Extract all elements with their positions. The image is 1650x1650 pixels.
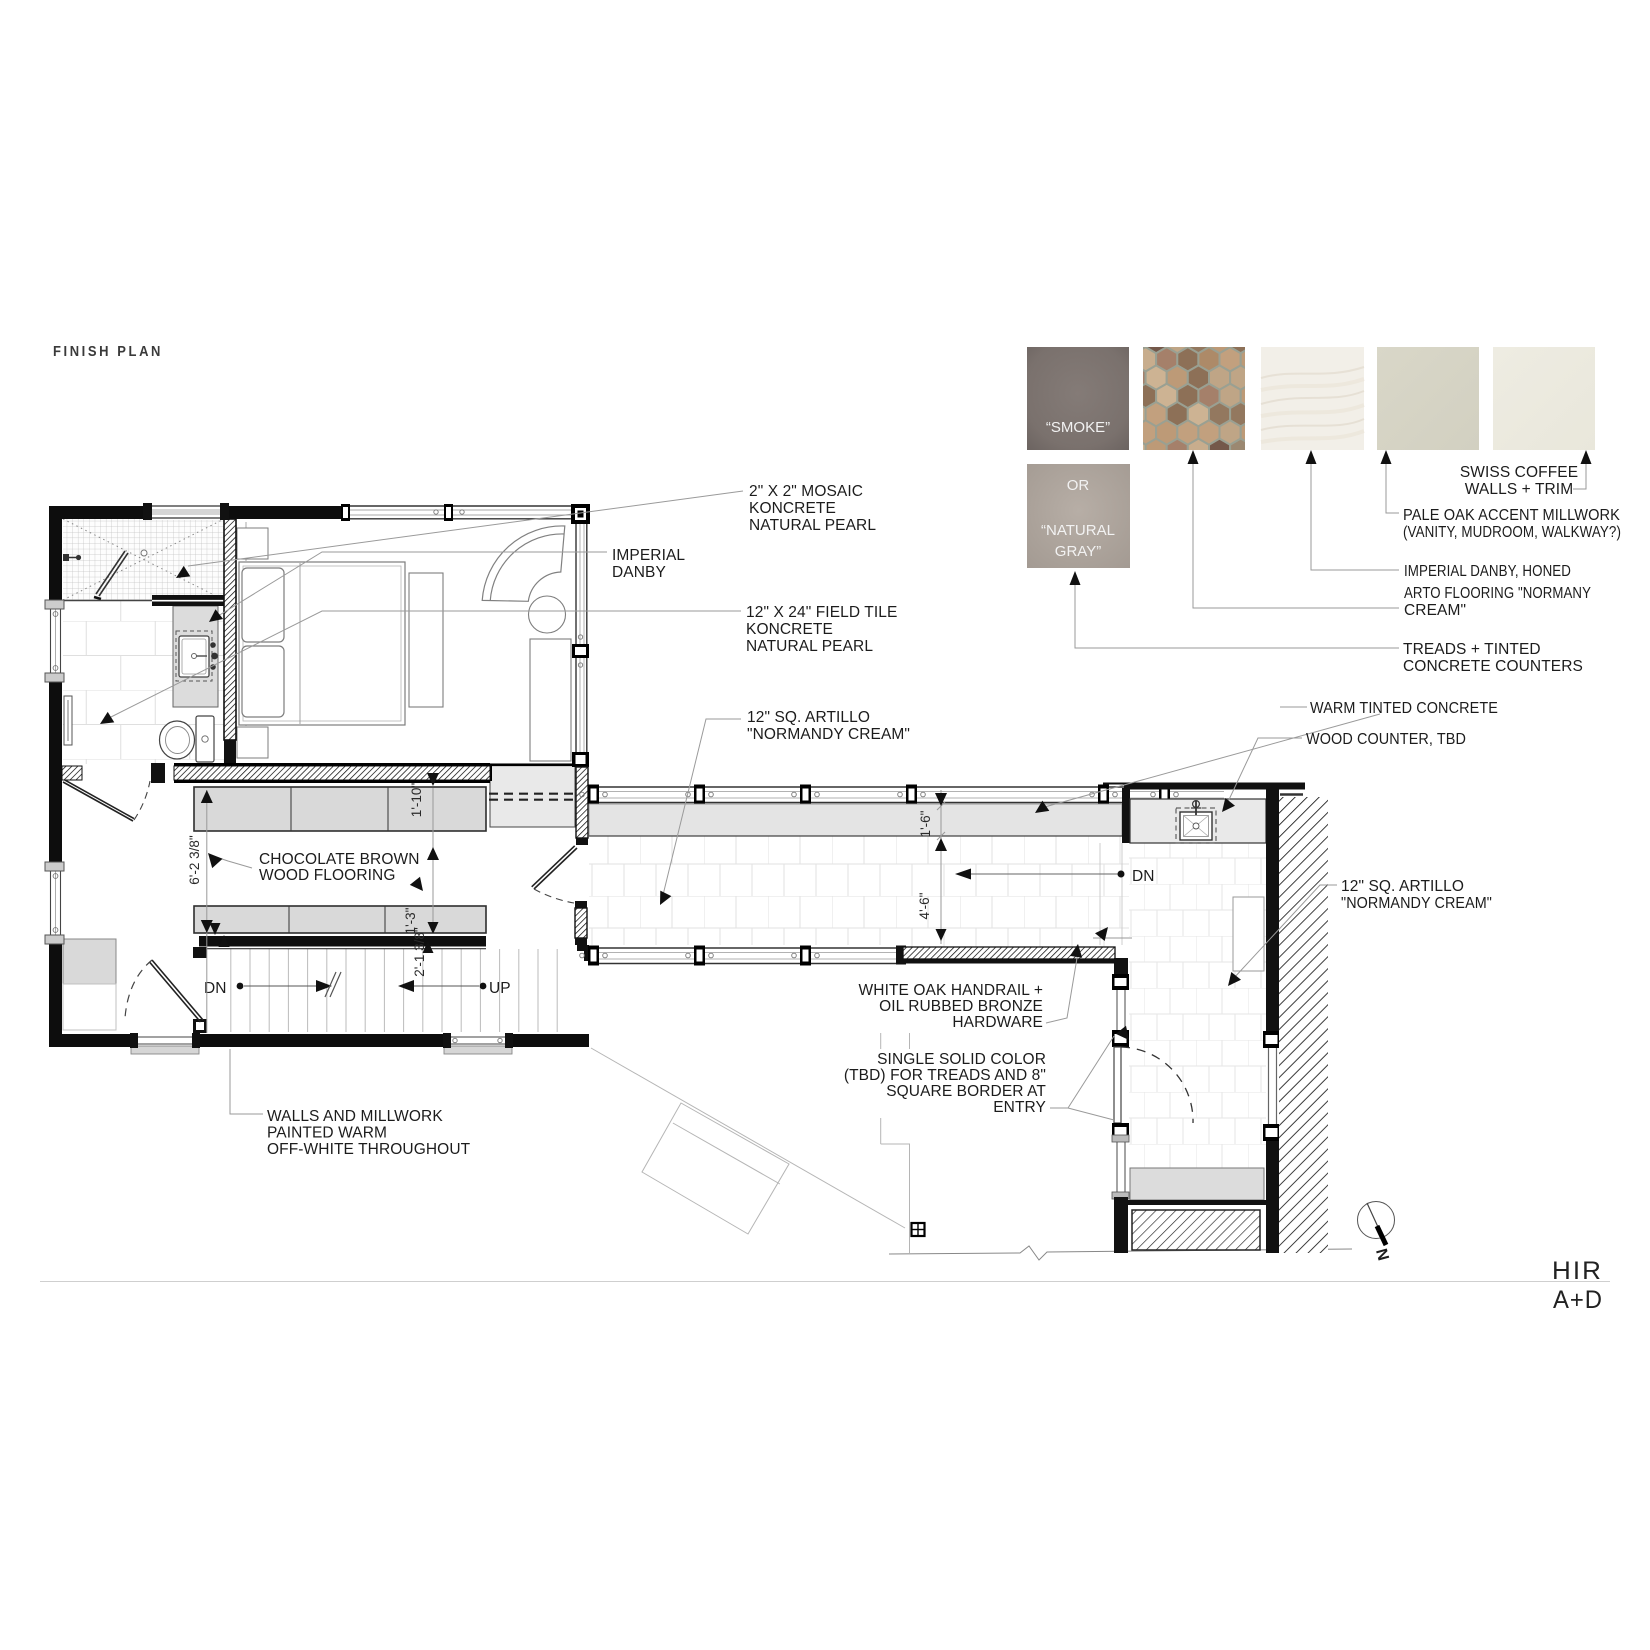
svg-text:OIL RUBBED BRONZE: OIL RUBBED BRONZE [879, 998, 1043, 1015]
svg-text:4'-6": 4'-6" [917, 892, 932, 919]
svg-text:OR: OR [1067, 477, 1090, 494]
svg-text:1'-10": 1'-10" [409, 783, 424, 818]
svg-text:“SMOKE”: “SMOKE” [1046, 419, 1110, 436]
svg-text:FINISH PLAN: FINISH PLAN [53, 343, 163, 360]
svg-text:(VANITY, MUDROOM, WALKWAY?): (VANITY, MUDROOM, WALKWAY?) [1403, 524, 1621, 541]
svg-text:CHOCOLATE BROWN: CHOCOLATE BROWN [259, 851, 420, 868]
svg-text:DN: DN [204, 980, 227, 997]
svg-text:12" SQ. ARTILLO: 12" SQ. ARTILLO [1341, 878, 1464, 895]
svg-text:DN: DN [1132, 868, 1155, 885]
svg-text:WOOD COUNTER, TBD: WOOD COUNTER, TBD [1306, 731, 1466, 748]
svg-text:NATURAL PEARL: NATURAL PEARL [746, 638, 873, 655]
svg-text:IMPERIAL: IMPERIAL [612, 547, 685, 564]
svg-text:HIR: HIR [1552, 1257, 1603, 1285]
svg-text:CONCRETE COUNTERS: CONCRETE COUNTERS [1403, 658, 1583, 675]
svg-text:2" X 2" MOSAIC: 2" X 2" MOSAIC [749, 483, 863, 500]
svg-text:ENTRY: ENTRY [993, 1099, 1046, 1116]
svg-text:OFF-WHITE THROUGHOUT: OFF-WHITE THROUGHOUT [267, 1141, 471, 1158]
svg-text:12" SQ. ARTILLO: 12" SQ. ARTILLO [747, 709, 870, 726]
svg-text:"NORMANDY CREAM": "NORMANDY CREAM" [747, 726, 910, 743]
svg-text:KONCRETE: KONCRETE [749, 500, 836, 517]
svg-text:UP: UP [489, 980, 511, 997]
svg-text:1'-3": 1'-3" [403, 907, 418, 934]
svg-text:"NORMANDY CREAM": "NORMANDY CREAM" [1341, 895, 1492, 912]
svg-text:“NATURAL: “NATURAL [1041, 522, 1115, 539]
svg-text:WHITE OAK HANDRAIL +: WHITE OAK HANDRAIL + [859, 982, 1043, 999]
svg-text:NATURAL PEARL: NATURAL PEARL [749, 517, 876, 534]
svg-text:PAINTED WARM: PAINTED WARM [267, 1125, 387, 1142]
svg-text:HARDWARE: HARDWARE [952, 1014, 1043, 1031]
svg-text:12" X 24" FIELD TILE: 12" X 24" FIELD TILE [746, 604, 897, 621]
svg-text:ARTO FLOORING "NORMANY: ARTO FLOORING "NORMANY [1404, 585, 1591, 602]
svg-text:IMPERIAL DANBY, HONED: IMPERIAL DANBY, HONED [1404, 563, 1571, 580]
svg-text:WARM TINTED CONCRETE: WARM TINTED CONCRETE [1310, 700, 1498, 717]
svg-text:(TBD) FOR TREADS AND 8": (TBD) FOR TREADS AND 8" [844, 1067, 1046, 1084]
svg-text:CREAM": CREAM" [1404, 602, 1466, 619]
svg-text:A+D: A+D [1553, 1286, 1603, 1314]
svg-text:6'-2 3/8": 6'-2 3/8" [187, 835, 202, 885]
svg-text:DANBY: DANBY [612, 564, 666, 581]
svg-text:WALLS + TRIM: WALLS + TRIM [1465, 481, 1573, 498]
svg-text:SWISS COFFEE: SWISS COFFEE [1460, 464, 1578, 481]
svg-text:WOOD FLOORING: WOOD FLOORING [259, 867, 396, 884]
svg-text:KONCRETE: KONCRETE [746, 621, 833, 638]
svg-text:1'-6": 1'-6" [918, 810, 933, 837]
svg-text:WALLS AND MILLWORK: WALLS AND MILLWORK [267, 1108, 443, 1125]
svg-text:TREADS + TINTED: TREADS + TINTED [1403, 641, 1541, 658]
svg-text:SQUARE BORDER AT: SQUARE BORDER AT [886, 1083, 1046, 1100]
svg-text:PALE OAK ACCENT MILLWORK: PALE OAK ACCENT MILLWORK [1403, 507, 1621, 524]
svg-text:GRAY”: GRAY” [1055, 543, 1101, 560]
svg-text:SINGLE SOLID COLOR: SINGLE SOLID COLOR [877, 1051, 1046, 1068]
